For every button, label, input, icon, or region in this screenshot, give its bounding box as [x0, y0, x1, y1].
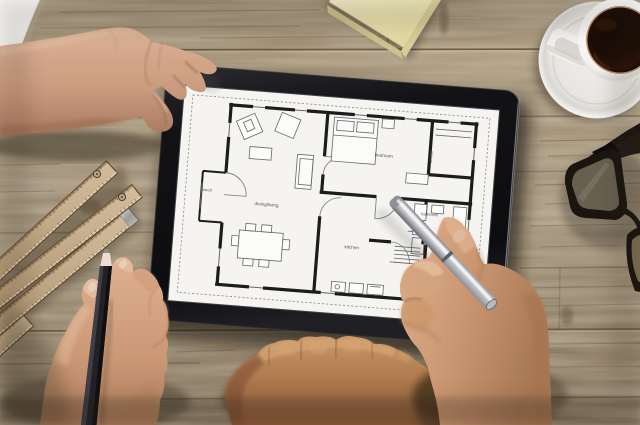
svg-text:porch: porch: [201, 187, 213, 193]
svg-text:closet: closet: [428, 151, 434, 164]
